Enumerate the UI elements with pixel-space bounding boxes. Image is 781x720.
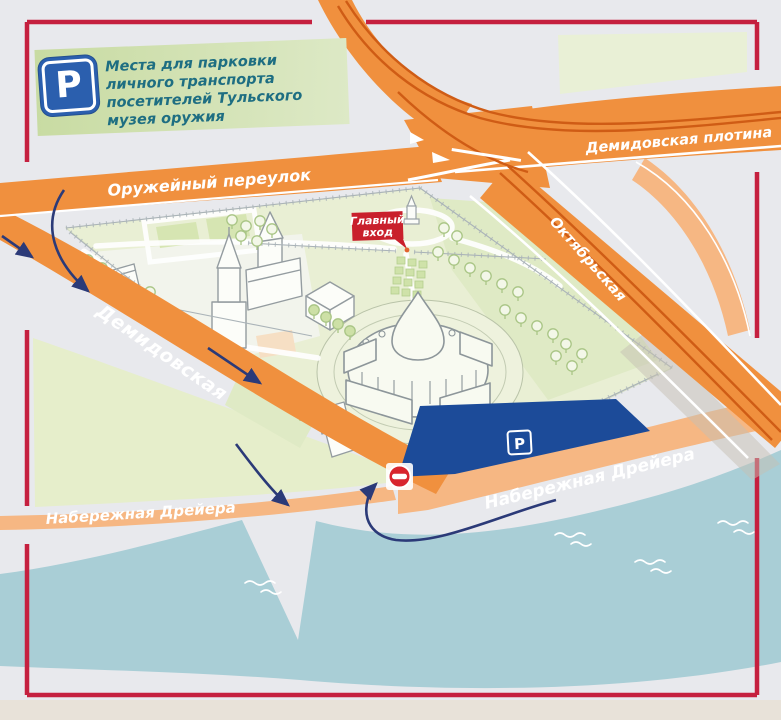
legend-text: Места для парковки личного транспорта по… [105,49,346,131]
legend: P Места для парковки личного транспорта … [34,38,349,136]
parking-sign-letter: P [514,435,526,454]
main-entrance-line2: вход [362,225,393,239]
legend-parking-letter: P [41,58,97,114]
page-edge-strip [0,700,781,720]
legend-parking-icon: P [38,55,100,117]
no-entry-icon [386,463,413,490]
parking-sign-icon: P [507,430,531,454]
